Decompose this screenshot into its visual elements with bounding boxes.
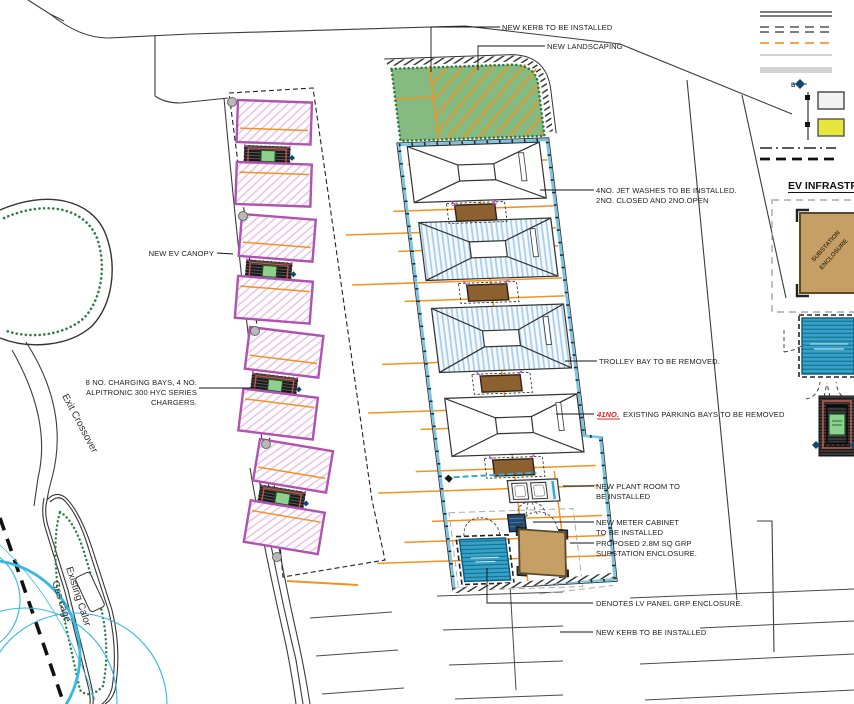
label-new-kerb-top: NEW KERB TO BE INSTALLED xyxy=(502,23,613,32)
label-new-kerb-bottom: NEW KERB TO BE INSTALLED xyxy=(596,628,707,637)
exit-crossover-road xyxy=(12,342,57,506)
legend-panel: B EV INFRASTRUCTURE SUBSTATION ENCLOSURE xyxy=(760,12,854,456)
wash-bay-3 xyxy=(432,304,572,372)
legend-lv-panel-enclosure xyxy=(799,315,854,399)
ev-charging-bay-pair xyxy=(234,214,318,324)
plant-room xyxy=(507,479,562,517)
legend-b-diamond-marker: B xyxy=(791,79,807,89)
wash-bay-1 xyxy=(407,142,546,202)
ev-charging-bay-pair xyxy=(234,100,314,207)
ev-canopy-area xyxy=(228,88,386,577)
label-exit-crossover: Exit Crossover xyxy=(59,392,100,455)
label-lv-panel: DENOTES LV PANEL GRP ENCLOSURE. xyxy=(596,599,743,608)
legend-heading: EV INFRASTRUCTURE xyxy=(788,180,854,192)
legend-cabinet-boxes xyxy=(805,92,844,140)
label-charging-bays-1: 8 NO. CHARGING BAYS, 4 NO. xyxy=(86,378,197,387)
label-new-ev-canopy: NEW EV CANOPY xyxy=(149,249,214,258)
lv-panel-enclosure-plan xyxy=(454,517,514,585)
label-substation-2: SUBSTATION ENCLOSURE. xyxy=(596,549,697,558)
label-trolley-bay: TROLLEY BAY TO BE REMOVED. xyxy=(599,357,720,366)
label-new-landscaping: NEW LANDSCAPING xyxy=(547,42,623,51)
site-plan-page: NEW KERB TO BE INSTALLED NEW LANDSCAPING… xyxy=(0,0,854,704)
label-meter-2: TO BE INSTALLED xyxy=(596,528,663,537)
label-substation-1: PROPOSED 2.8M SQ GRP xyxy=(596,539,692,548)
new-landscaping-area xyxy=(384,53,556,141)
jet-wash-structure xyxy=(314,53,621,599)
label-jet-washes-2: 2NO. CLOSED AND 2NO.OPEN xyxy=(596,196,709,205)
teardrop-island xyxy=(0,199,112,344)
label-plant-room-1: NEW PLANT ROOM TO xyxy=(596,482,680,491)
ev-charging-bay-pair xyxy=(243,439,335,554)
substation-enclosure-plan xyxy=(517,527,568,578)
duct-line-bottom xyxy=(287,581,358,585)
ev-charging-bay-pair xyxy=(237,327,325,439)
label-plant-room-2: BE INSTALLED xyxy=(596,492,651,501)
wash-bay-2 xyxy=(419,218,558,280)
site-plan-canvas: NEW KERB TO BE INSTALLED NEW LANDSCAPING… xyxy=(0,0,854,704)
label-charging-bays-2: ALPITRONIC 300 HYC SERIES xyxy=(86,388,197,397)
label-charging-bays-3: CHARGERS. xyxy=(151,398,197,407)
wash-bay-4 xyxy=(445,394,584,456)
label-parking-bays-removed: 41NO.EXISTING PARKING BAYS TO BE REMOVED xyxy=(596,410,785,419)
label-jet-washes-1: 4NO. JET WASHES TO BE INSTALLED. xyxy=(596,186,737,195)
legend-ev-charger-detail xyxy=(812,396,854,456)
label-meter-1: NEW METER CABINET xyxy=(596,518,679,527)
existing-parking-bay-lines xyxy=(310,584,854,700)
